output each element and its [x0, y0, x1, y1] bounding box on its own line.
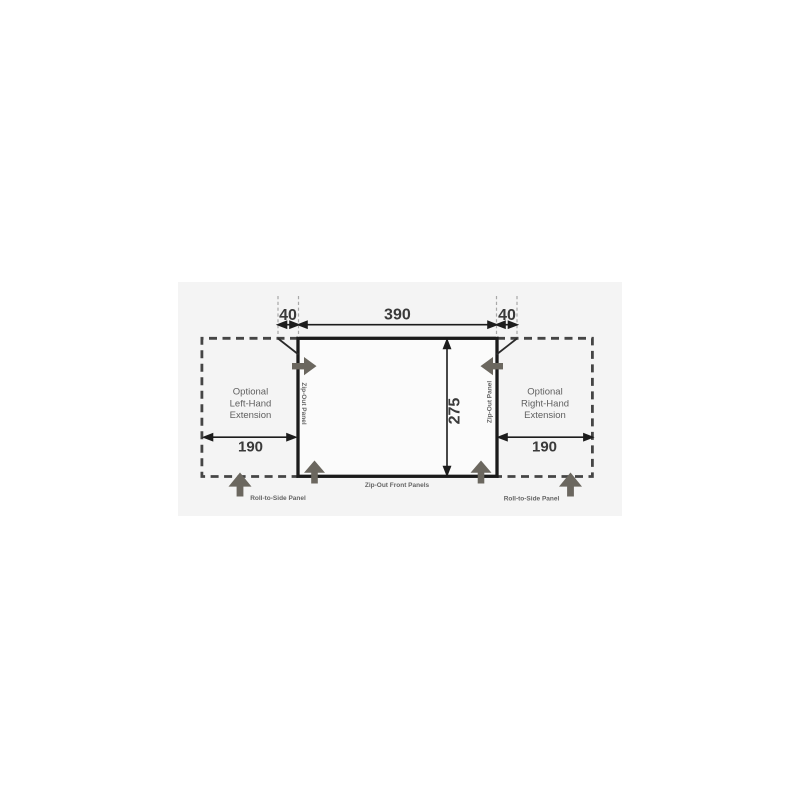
svg-text:Zip-Out Front Panels: Zip-Out Front Panels — [365, 482, 430, 489]
svg-text:390: 390 — [384, 307, 411, 324]
svg-text:Extension: Extension — [524, 410, 566, 421]
svg-text:Left-Hand: Left-Hand — [230, 399, 272, 410]
svg-text:Optional: Optional — [527, 387, 562, 398]
svg-text:190: 190 — [238, 439, 263, 456]
svg-text:Zip-Out Panel: Zip-Out Panel — [487, 381, 494, 423]
svg-text:40: 40 — [498, 307, 516, 324]
svg-text:Roll-to-Side Panel: Roll-to-Side Panel — [504, 496, 560, 503]
svg-text:Right-Hand: Right-Hand — [521, 399, 569, 410]
svg-text:Roll-to-Side Panel: Roll-to-Side Panel — [250, 495, 306, 502]
svg-text:Optional: Optional — [233, 387, 268, 398]
svg-text:40: 40 — [279, 307, 297, 324]
svg-text:Zip-Out Panel: Zip-Out Panel — [300, 382, 307, 424]
svg-text:190: 190 — [532, 439, 557, 456]
svg-text:Extension: Extension — [230, 410, 272, 421]
svg-text:275: 275 — [447, 398, 464, 425]
